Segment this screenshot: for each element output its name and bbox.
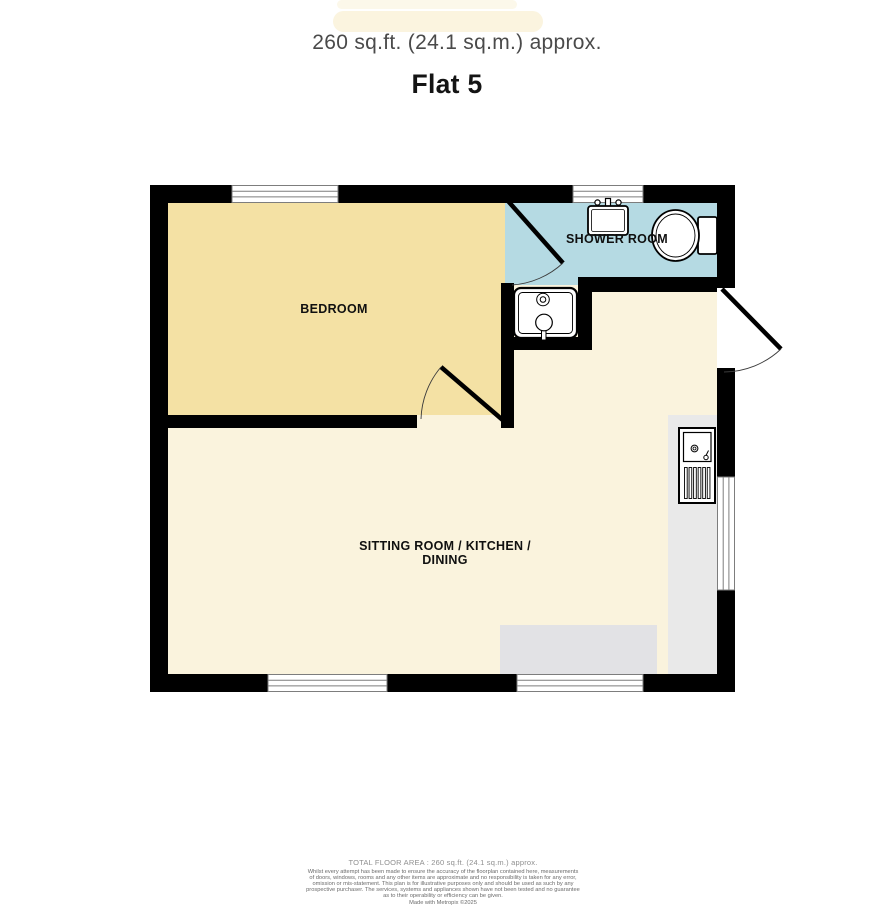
bedroom-label: BEDROOM — [300, 302, 367, 316]
made-with-credit: Made with Metropix ©2025 — [4, 900, 882, 906]
kitchen-sink-drainer — [679, 428, 715, 503]
total-floor-area: TOTAL FLOOR AREA : 260 sq.ft. (24.1 sq.m… — [4, 858, 882, 867]
floorplan-page: 260 sq.ft. (24.1 sq.m.) approx. Flat 5 — [0, 0, 886, 916]
window-bottom-left — [268, 675, 387, 692]
shower — [514, 288, 577, 340]
floor-plan: BEDROOM SHOWER ROOM SITTING ROOM / KITCH… — [0, 0, 886, 916]
sitting-room-label-line1: SITTING ROOM / KITCHEN / — [359, 539, 531, 553]
kitchen-floor-area — [500, 625, 657, 674]
window-top-left — [232, 186, 338, 203]
window-bottom-right — [517, 675, 643, 692]
window-right — [718, 477, 735, 590]
entrance-door — [717, 288, 781, 372]
shower-room-label: SHOWER ROOM — [566, 232, 668, 246]
sitting-room-label-line2: DINING — [422, 553, 468, 567]
footer: TOTAL FLOOR AREA : 260 sq.ft. (24.1 sq.m… — [4, 858, 882, 906]
